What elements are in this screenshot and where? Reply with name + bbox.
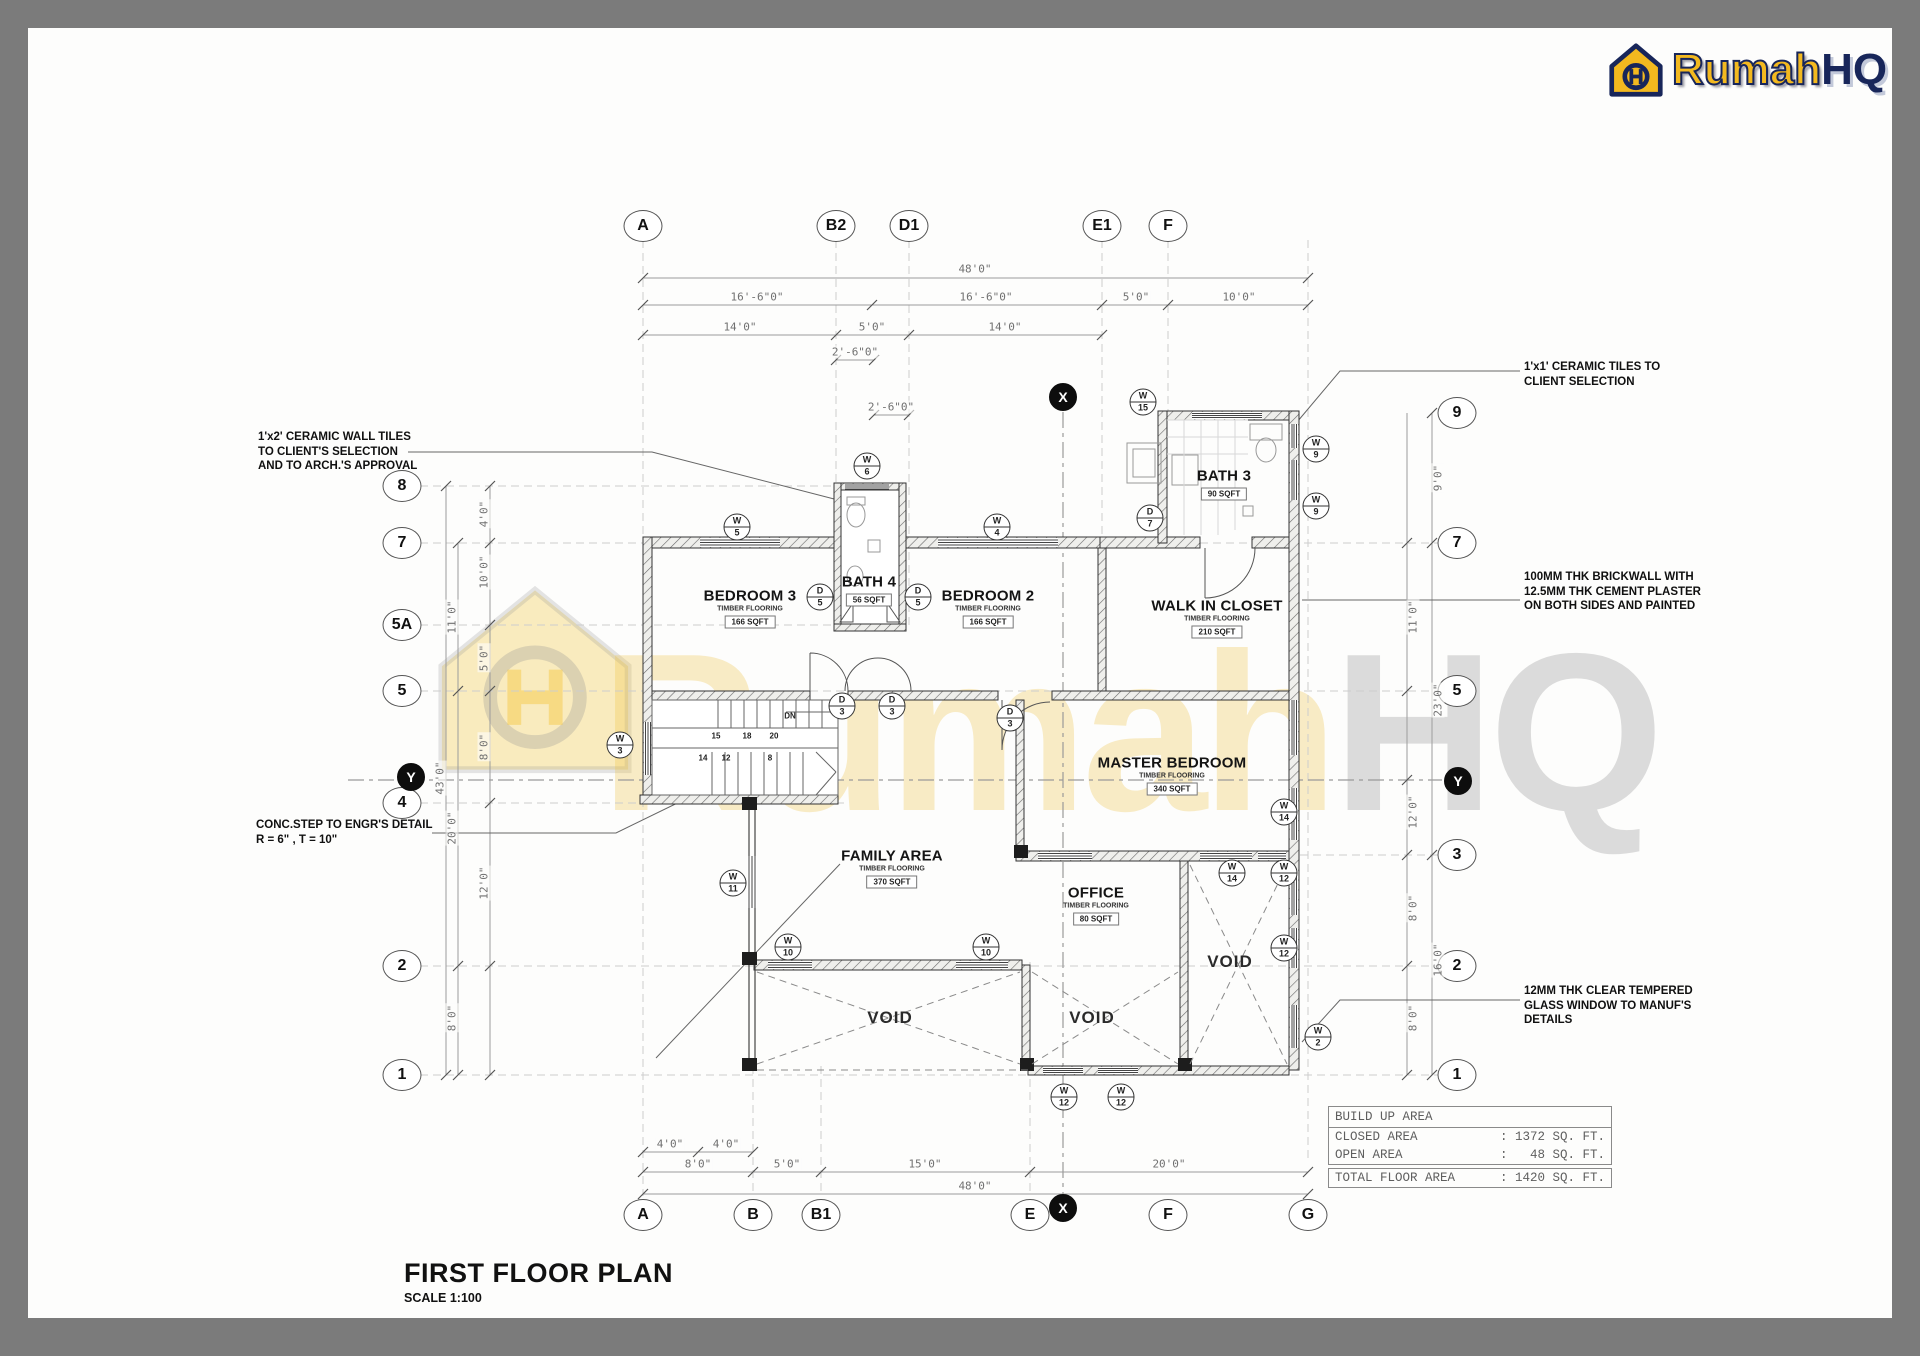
dimension-label: 5'0" — [478, 644, 491, 673]
annotation-line: CONC.STEP TO ENGR'S DETAIL — [256, 818, 433, 833]
annotation-note: 100MM THK BRICKWALL WITH12.5MM THK CEMEN… — [1524, 570, 1701, 614]
tag-d7: D7 — [1137, 505, 1164, 532]
tag-number: 9 — [1304, 507, 1329, 519]
tag-w10: W10 — [775, 934, 802, 961]
row-label: OPEN AREA — [1335, 1148, 1403, 1162]
tag-letter: W — [776, 935, 801, 948]
annotation-line: 1'x1' CERAMIC TILES TO — [1524, 360, 1660, 375]
tag-w3: W3 — [607, 732, 634, 759]
floor-plan-sheet: { "logo": {"brand_1": "Rumah", "brand_2"… — [0, 0, 1920, 1356]
dimension-label: 20'0" — [1151, 1158, 1186, 1171]
logo-rumah: Rumah — [1672, 45, 1821, 94]
dimension-label: 11'0" — [1407, 599, 1420, 634]
dimension-label: 16'0" — [1432, 942, 1445, 977]
tag-number: 10 — [776, 948, 801, 960]
room-label-master-bedroom: MASTER BEDROOMTIMBER FLOORING340 SQFT — [1098, 755, 1247, 796]
tag-letter: W — [974, 935, 999, 948]
grid-bubble-a: A — [624, 210, 663, 242]
stair-label-20: 20 — [770, 732, 779, 741]
dimension-label: 48'0" — [957, 263, 992, 276]
section-marker-x: X — [1049, 1194, 1077, 1222]
stair-label-8: 8 — [768, 754, 772, 763]
tag-letter: W — [1304, 494, 1329, 507]
void-label: VOID — [867, 1008, 913, 1028]
section-marker-x: X — [1049, 383, 1077, 411]
row-label: TOTAL FLOOR AREA — [1335, 1171, 1455, 1185]
tag-w5: W5 — [724, 514, 751, 541]
tag-w9: W9 — [1303, 493, 1330, 520]
section-marker-y: Y — [1444, 767, 1472, 795]
annotation-line: 12MM THK CLEAR TEMPERED — [1524, 984, 1693, 999]
dimension-label: 9'0" — [1432, 464, 1445, 493]
tag-number: 6 — [855, 467, 880, 479]
build-up-area-table: BUILD UP AREA CLOSED AREA : 1372 SQ. FT.… — [1328, 1106, 1612, 1188]
tag-w12: W12 — [1271, 860, 1298, 887]
tag-w11: W11 — [720, 870, 747, 897]
logo-hq: HQ — [1821, 45, 1887, 94]
dimension-label: 16'-6"0" — [959, 291, 1014, 304]
dimension-label: 2'-6"0" — [831, 346, 879, 359]
annotation-line: 100MM THK BRICKWALL WITH — [1524, 570, 1701, 585]
room-name: BEDROOM 3 — [704, 588, 797, 605]
dimension-label: 5'0" — [858, 321, 887, 334]
stair-label-dn: DN — [784, 712, 796, 721]
room-flooring: TIMBER FLOORING — [1063, 903, 1129, 910]
room-name: OFFICE — [1068, 885, 1124, 902]
tag-number: 12 — [1109, 1098, 1134, 1110]
row-value: : 1372 SQ. FT. — [1500, 1130, 1605, 1144]
tag-w4: W4 — [984, 514, 1011, 541]
room-label-walk-in-closet: WALK IN CLOSETTIMBER FLOORING210 SQFT — [1151, 598, 1282, 639]
annotation-line: DETAILS — [1524, 1013, 1693, 1028]
dimension-label: 8'0" — [478, 733, 491, 762]
dimension-label: 2'-6"0" — [867, 401, 915, 414]
tag-number: 14 — [1272, 813, 1297, 825]
tag-w15: W15 — [1130, 389, 1157, 416]
annotation-line: ON BOTH SIDES AND PAINTED — [1524, 599, 1701, 614]
tag-letter: W — [725, 515, 750, 528]
stair-label-14: 14 — [699, 754, 708, 763]
tag-w14: W14 — [1271, 799, 1298, 826]
dimension-label: 12'0" — [1407, 794, 1420, 829]
tag-letter: W — [1052, 1085, 1077, 1098]
tag-w2: W2 — [1305, 1024, 1332, 1051]
tag-number: 2 — [1306, 1038, 1331, 1050]
tag-number: 5 — [725, 528, 750, 540]
grid-bubble-g: G — [1289, 1199, 1328, 1231]
annotation-note: 1'x2' CERAMIC WALL TILESTO CLIENT'S SELE… — [258, 430, 417, 474]
tag-letter: W — [608, 733, 633, 746]
tag-w6: W6 — [854, 453, 881, 480]
room-name: BATH 4 — [842, 574, 896, 591]
row-value: : 1420 SQ. FT. — [1500, 1171, 1605, 1185]
grid-bubble-b: B — [734, 1199, 773, 1231]
room-label-bath-3: BATH 390 SQFT — [1197, 468, 1251, 501]
grid-bubble-a: A — [624, 1199, 663, 1231]
grid-bubble-e1: E1 — [1083, 210, 1122, 242]
dimension-label: 8'0" — [1407, 1004, 1420, 1033]
tag-number: 7 — [1138, 519, 1163, 531]
tag-letter: W — [1109, 1085, 1134, 1098]
room-area: 80 SQFT — [1073, 913, 1119, 926]
tag-number: 11 — [721, 884, 746, 896]
annotation-note: 12MM THK CLEAR TEMPEREDGLASS WINDOW TO M… — [1524, 984, 1693, 1028]
dimension-label: 10'0" — [478, 554, 491, 589]
tag-w9: W9 — [1303, 436, 1330, 463]
drawing-scale: SCALE 1:100 — [404, 1291, 673, 1305]
tag-d3: D3 — [829, 693, 856, 720]
tag-w12: W12 — [1271, 935, 1298, 962]
tag-number: 12 — [1272, 874, 1297, 886]
grid-bubble-8: 8 — [383, 470, 422, 502]
tag-number: 4 — [985, 528, 1010, 540]
grid-bubble-2: 2 — [383, 950, 422, 982]
tag-number: 10 — [974, 948, 999, 960]
tag-number: 12 — [1052, 1098, 1077, 1110]
tag-number: 3 — [880, 707, 905, 719]
annotation-line: 1'x2' CERAMIC WALL TILES — [258, 430, 417, 445]
tag-w12: W12 — [1108, 1084, 1135, 1111]
table-row-closed-area: CLOSED AREA : 1372 SQ. FT. — [1329, 1128, 1611, 1146]
stair-label-15: 15 — [712, 732, 721, 741]
grid-bubble-9: 9 — [1438, 397, 1477, 429]
dimension-label: 16'-6"0" — [730, 291, 785, 304]
tag-letter: D — [808, 585, 833, 598]
grid-bubble-1: 1 — [383, 1059, 422, 1091]
tag-letter: W — [985, 515, 1010, 528]
annotation-line: GLASS WINDOW TO MANUF'S — [1524, 999, 1693, 1014]
room-name: WALK IN CLOSET — [1151, 598, 1282, 615]
tag-letter: D — [1138, 506, 1163, 519]
tag-number: 15 — [1131, 403, 1156, 415]
annotation-line: CLIENT SELECTION — [1524, 375, 1660, 390]
dimension-label: 11'0" — [446, 599, 459, 634]
room-area: 90 SQFT — [1201, 488, 1247, 501]
grid-bubble-b2: B2 — [817, 210, 856, 242]
tag-letter: W — [1272, 861, 1297, 874]
room-flooring: TIMBER FLOORING — [1139, 773, 1205, 780]
section-marker-y: Y — [397, 763, 425, 791]
grid-bubble-1: 1 — [1438, 1059, 1477, 1091]
tag-letter: W — [1220, 861, 1245, 874]
dimension-label: 8'0" — [1407, 894, 1420, 923]
dimension-label: 48'0" — [957, 1180, 992, 1193]
grid-bubble-d1: D1 — [890, 210, 929, 242]
tag-number: 3 — [830, 707, 855, 719]
dimension-label: 8'0" — [684, 1158, 713, 1171]
grid-bubble-5: 5 — [383, 675, 422, 707]
room-flooring: TIMBER FLOORING — [859, 866, 925, 873]
row-value: : 48 SQ. FT. — [1500, 1148, 1605, 1162]
room-name: MASTER BEDROOM — [1098, 755, 1247, 772]
annotation-note: 1'x1' CERAMIC TILES TOCLIENT SELECTION — [1524, 360, 1660, 389]
grid-bubble-3: 3 — [1438, 839, 1477, 871]
table-row-open-area: OPEN AREA : 48 SQ. FT. — [1329, 1146, 1611, 1164]
tag-d3: D3 — [879, 693, 906, 720]
drawing-title: FIRST FLOOR PLAN — [404, 1258, 673, 1289]
tag-letter: W — [1272, 936, 1297, 949]
grid-bubble-e: E — [1011, 1199, 1050, 1231]
void-label: VOID — [1069, 1008, 1115, 1028]
dimension-label: 5'0" — [1122, 291, 1151, 304]
stair-label-12: 12 — [722, 754, 731, 763]
room-area: 56 SQFT — [846, 594, 892, 607]
annotation-line: TO CLIENT'S SELECTION — [258, 445, 417, 460]
room-label-bath-4: BATH 456 SQFT — [842, 574, 896, 607]
tag-d5: D5 — [905, 584, 932, 611]
dimension-label: 4'0" — [656, 1138, 685, 1151]
room-label-bedroom-2: BEDROOM 2TIMBER FLOORING166 SQFT — [942, 588, 1035, 629]
grid-bubble-7: 7 — [1438, 527, 1477, 559]
dimension-label: 14'0" — [987, 321, 1022, 334]
tag-letter: D — [880, 694, 905, 707]
tag-letter: W — [855, 454, 880, 467]
table-body: CLOSED AREA : 1372 SQ. FT. OPEN AREA : 4… — [1328, 1128, 1612, 1165]
tag-d5: D5 — [807, 584, 834, 611]
room-label-bedroom-3: BEDROOM 3TIMBER FLOORING166 SQFT — [704, 588, 797, 629]
table-header: BUILD UP AREA — [1328, 1106, 1612, 1128]
dimension-label: 5'0" — [773, 1158, 802, 1171]
tag-number: 3 — [998, 719, 1023, 731]
stair-label-18: 18 — [743, 732, 752, 741]
grid-bubble-f: F — [1149, 1199, 1188, 1231]
room-area: 210 SQFT — [1192, 626, 1243, 639]
dimension-label: 8'0" — [446, 1004, 459, 1033]
row-label: CLOSED AREA — [1335, 1130, 1418, 1144]
grid-bubble-b1: B1 — [802, 1199, 841, 1231]
dimension-label: 43'0" — [434, 760, 447, 795]
grid-bubble-5a: 5A — [383, 609, 422, 641]
grid-bubble-4: 4 — [383, 787, 422, 819]
tag-w12: W12 — [1051, 1084, 1078, 1111]
logo-text: RumahHQ — [1672, 48, 1887, 92]
tag-number: 9 — [1304, 450, 1329, 462]
grid-bubble-7: 7 — [383, 527, 422, 559]
tag-letter: W — [1131, 390, 1156, 403]
table-row-total: TOTAL FLOOR AREA : 1420 SQ. FT. — [1328, 1168, 1612, 1188]
room-area: 370 SQFT — [867, 876, 918, 889]
title-block: FIRST FLOOR PLAN SCALE 1:100 — [404, 1258, 673, 1305]
tag-letter: W — [1304, 437, 1329, 450]
room-label-office: OFFICETIMBER FLOORING80 SQFT — [1063, 885, 1129, 926]
void-label: VOID — [1207, 952, 1253, 972]
tag-d3: D3 — [997, 705, 1024, 732]
tag-letter: D — [830, 694, 855, 707]
tag-number: 5 — [906, 598, 931, 610]
labels-overlay: AB2D1E1FABB1EFG875A5421975321XXYYW5W6W4W… — [0, 0, 1920, 1356]
annotation-line: 12.5MM THK CEMENT PLASTER — [1524, 585, 1701, 600]
tag-number: 5 — [808, 598, 833, 610]
dimension-label: 15'0" — [907, 1158, 942, 1171]
room-label-family-area: FAMILY AREATIMBER FLOORING370 SQFT — [841, 848, 943, 889]
dimension-label: 14'0" — [722, 321, 757, 334]
room-name: BEDROOM 2 — [942, 588, 1035, 605]
tag-number: 14 — [1220, 874, 1245, 886]
tag-w14: W14 — [1219, 860, 1246, 887]
tag-letter: D — [906, 585, 931, 598]
rumahhq-logo: RumahHQ — [1608, 38, 1908, 102]
annotation-note: CONC.STEP TO ENGR'S DETAILR = 6" , T = 1… — [256, 818, 433, 847]
house-icon — [1608, 42, 1664, 98]
tag-number: 12 — [1272, 949, 1297, 961]
room-name: BATH 3 — [1197, 468, 1251, 485]
tag-letter: W — [1306, 1025, 1331, 1038]
room-flooring: TIMBER FLOORING — [717, 606, 783, 613]
dimension-label: 20'0" — [446, 810, 459, 845]
dimension-label: 23'0" — [1432, 682, 1445, 717]
room-name: FAMILY AREA — [841, 848, 943, 865]
tag-number: 3 — [608, 746, 633, 758]
room-flooring: TIMBER FLOORING — [1184, 616, 1250, 623]
room-area: 166 SQFT — [725, 616, 776, 629]
tag-letter: W — [1272, 800, 1297, 813]
room-area: 340 SQFT — [1147, 783, 1198, 796]
annotation-line: AND TO ARCH.'S APPROVAL — [258, 459, 417, 474]
room-flooring: TIMBER FLOORING — [955, 606, 1021, 613]
dimension-label: 4'0" — [712, 1138, 741, 1151]
dimension-label: 10'0" — [1221, 291, 1256, 304]
tag-letter: W — [721, 871, 746, 884]
grid-bubble-f: F — [1149, 210, 1188, 242]
tag-letter: D — [998, 706, 1023, 719]
annotation-line: R = 6" , T = 10" — [256, 833, 433, 848]
tag-w10: W10 — [973, 934, 1000, 961]
dimension-label: 12'0" — [478, 865, 491, 900]
dimension-label: 4'0" — [478, 500, 491, 529]
room-area: 166 SQFT — [963, 616, 1014, 629]
